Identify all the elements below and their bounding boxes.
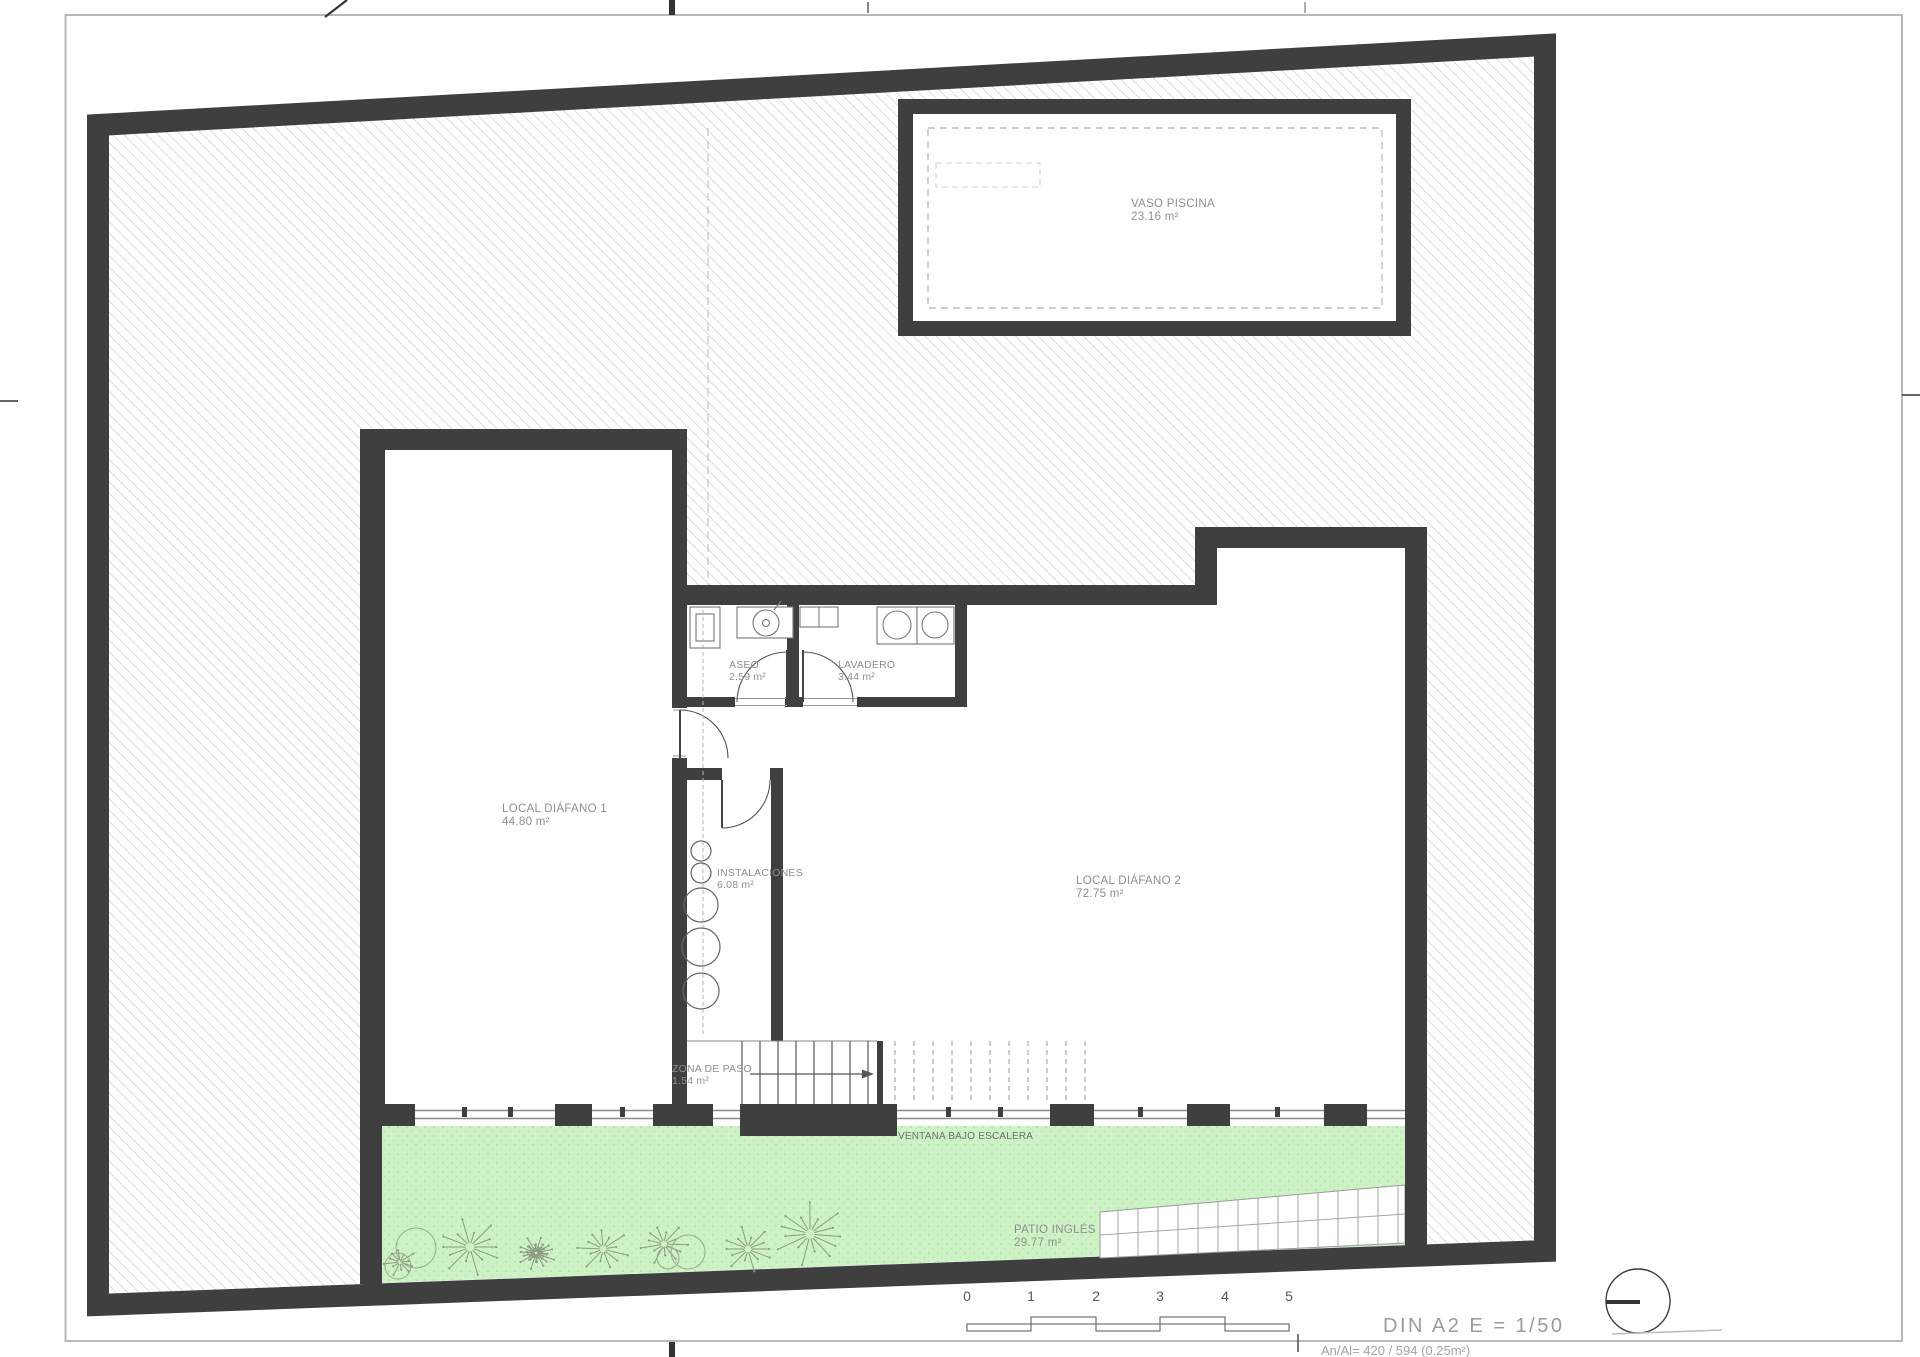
scale-tick: 5 <box>1285 1288 1293 1304</box>
room-label-lavadero: LAVADERO <box>838 659 895 671</box>
annotation-ventana-bajo-escalera: VENTANA BAJO ESCALERA <box>898 1131 1033 1142</box>
room-area-patio-ingles: 29.77 m² <box>1014 1237 1062 1249</box>
room-area-instalaciones: 6.08 m² <box>717 879 754 891</box>
room-label-zona-de-paso: ZONA DE PASO <box>672 1063 752 1075</box>
scale-bar: 0 1 2 3 4 5 <box>963 1288 1293 1331</box>
scale-tick: 2 <box>1092 1288 1100 1304</box>
scale-tick: 1 <box>1027 1288 1035 1304</box>
scale-tick: 0 <box>963 1288 971 1304</box>
floor-plan-canvas: VASO PISCINA 23.16 m² LOCAL DIÁFANO 1 44… <box>0 0 1920 1357</box>
fold-mark-icon <box>669 1342 675 1357</box>
room-label-local-diafano-1: LOCAL DIÁFANO 1 <box>502 802 607 815</box>
room-area-zona-de-paso: 1.54 m² <box>672 1075 709 1087</box>
room-label-local-diafano-2: LOCAL DIÁFANO 2 <box>1076 874 1181 887</box>
north-symbol-icon <box>1606 1269 1722 1334</box>
room-label-patio-ingles: PATIO INGLÉS <box>1014 1223 1096 1236</box>
scale-tick: 3 <box>1156 1288 1164 1304</box>
room-label-instalaciones: INSTALACIONES <box>717 867 803 879</box>
scale-tick: 4 <box>1221 1288 1229 1304</box>
room-area-local-diafano-1: 44.80 m² <box>502 816 550 828</box>
sheet-format-scale: DIN A2 E = 1/50 <box>1383 1315 1564 1337</box>
room-label-aseo: ASEO <box>729 659 759 671</box>
fold-mark-icon <box>669 0 675 15</box>
room-area-lavadero: 3.44 m² <box>838 671 875 683</box>
pool-area: 23.16 m² <box>1131 211 1179 223</box>
sheet-info: An/Al= 420 / 594 (0.25m²) <box>1321 1343 1470 1357</box>
room-area-local-diafano-2: 72.75 m² <box>1076 888 1124 900</box>
room-area-aseo: 2.59 m² <box>729 671 766 683</box>
pool-label: VASO PISCINA <box>1131 198 1215 210</box>
